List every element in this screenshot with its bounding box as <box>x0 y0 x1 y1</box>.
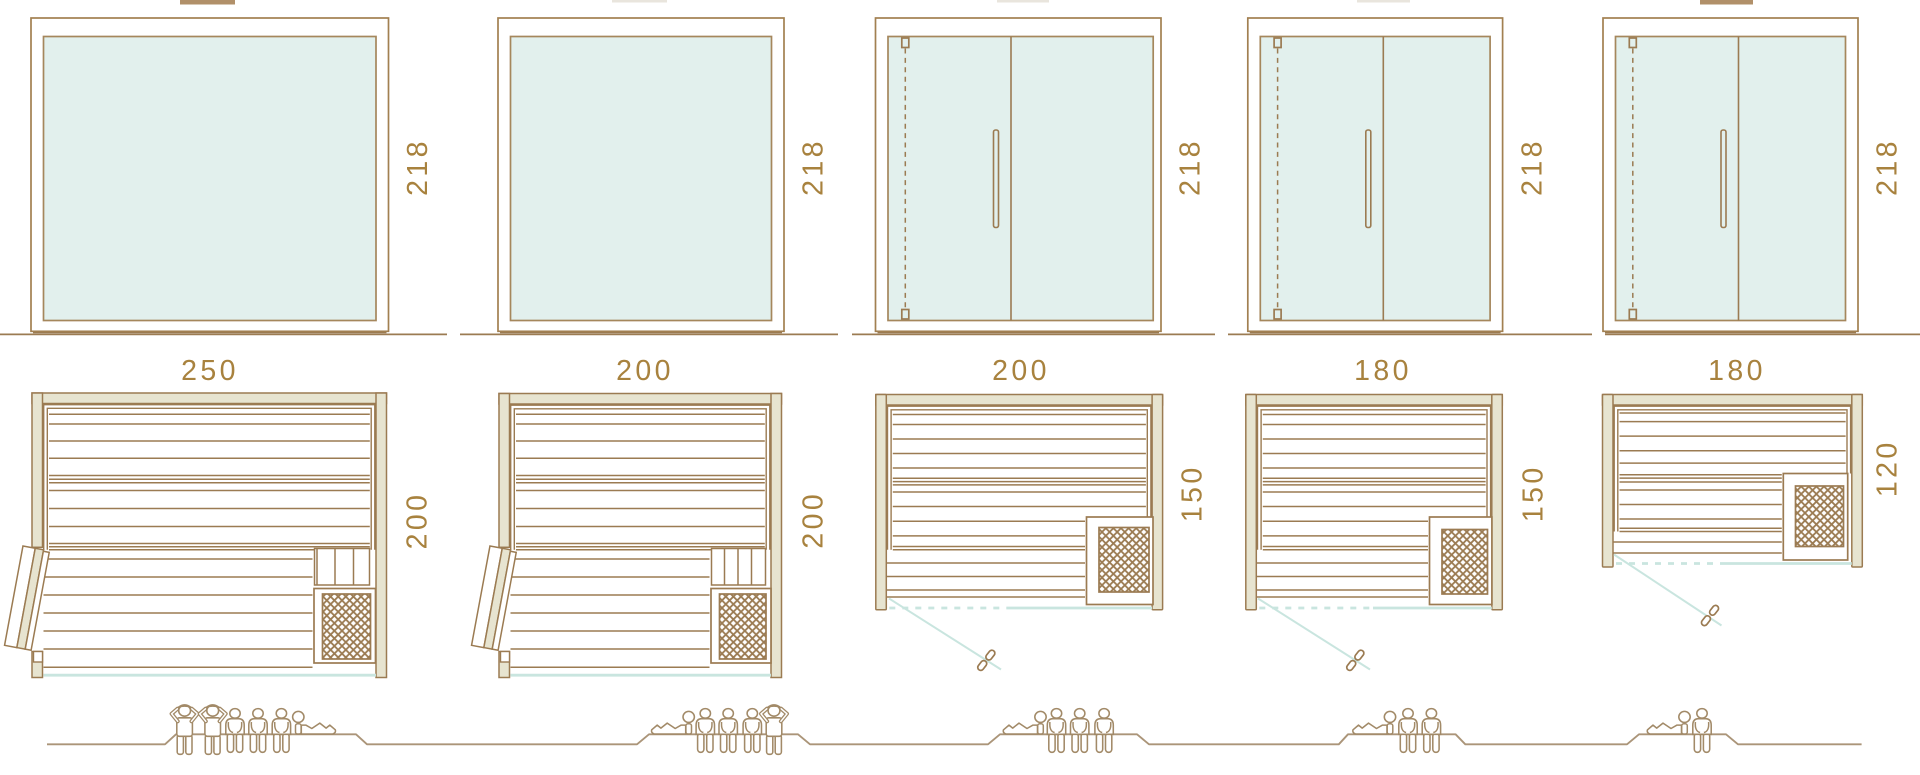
svg-text:218: 218 <box>798 138 830 196</box>
svg-text:180: 180 <box>1354 355 1412 387</box>
svg-text:200: 200 <box>992 355 1050 387</box>
svg-text:218: 218 <box>1175 138 1207 196</box>
svg-text:250: 250 <box>181 355 239 387</box>
svg-text:200: 200 <box>402 492 434 550</box>
svg-text:150: 150 <box>1518 464 1550 522</box>
svg-text:200: 200 <box>797 491 829 549</box>
svg-text:120: 120 <box>1871 439 1903 497</box>
svg-text:180: 180 <box>1708 355 1766 387</box>
svg-text:218: 218 <box>1516 138 1548 196</box>
svg-text:218: 218 <box>402 138 434 196</box>
svg-text:200: 200 <box>616 355 674 387</box>
svg-text:150: 150 <box>1177 464 1209 522</box>
svg-text:218: 218 <box>1872 138 1904 196</box>
